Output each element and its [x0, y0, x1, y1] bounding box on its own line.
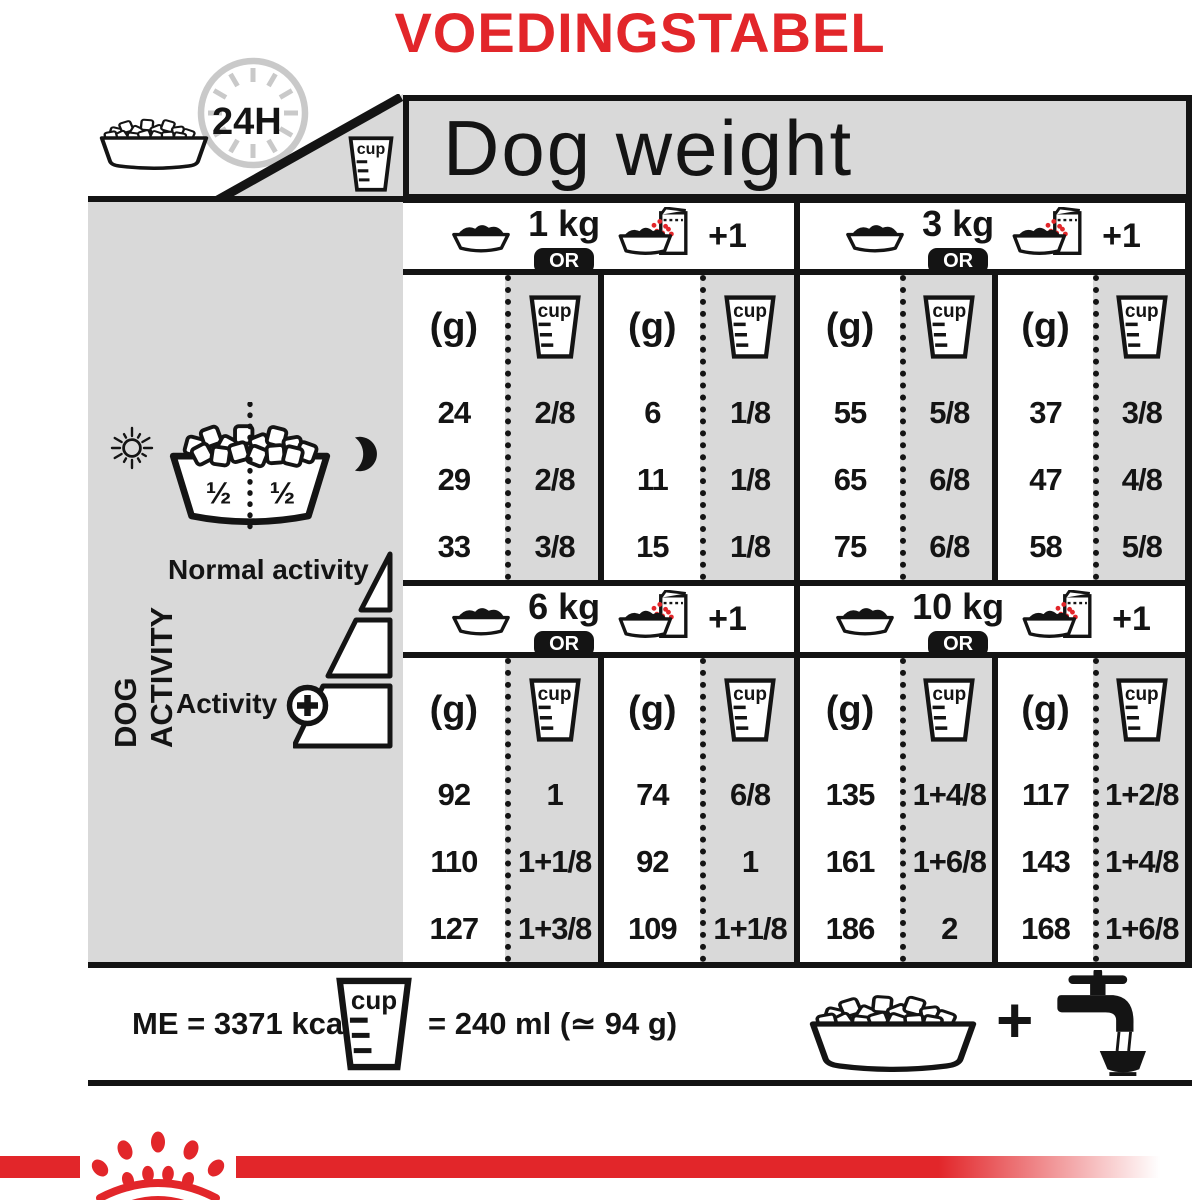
bowl-with-wet-pouch-icon [616, 207, 692, 261]
grams-column: (g) 135 161 186 [800, 658, 900, 962]
weight-block-header: 3 kg OR +1 [800, 203, 1185, 275]
cup-header: cup [706, 275, 794, 379]
weight-or-stack: 10 kg OR [912, 589, 1004, 650]
cup-equivalent-label: = 240 ml (≃ 94 g) [428, 968, 677, 1080]
grams-value: 15 [604, 513, 700, 580]
weight-grid: 1 kg OR +1 (g) 24 29 33 cup [403, 203, 1192, 962]
grams-value: 92 [604, 829, 700, 896]
grams-value: 24 [403, 379, 505, 446]
cup-value: 1+1/8 [511, 829, 599, 896]
grams-column: (g) 117 143 168 [992, 658, 1092, 962]
cup-value: 1+4/8 [906, 762, 992, 829]
dog-weight-value: 3 kg [922, 206, 994, 242]
cup-header: cup [511, 275, 599, 379]
cup-icon: cup [336, 977, 412, 1071]
weight-block-header: 10 kg OR +1 [800, 586, 1185, 658]
grams-header: (g) [604, 275, 700, 379]
grams-header: (g) [800, 275, 900, 379]
grams-value: 75 [800, 513, 900, 580]
cup-label: cup [346, 141, 396, 159]
grams-column: (g) 55 65 75 [800, 275, 900, 580]
half-half-bowl-icon: ½ ½ [165, 402, 335, 542]
weight-block: 3 kg OR +1 (g) 55 65 75 cup [794, 203, 1185, 580]
grams-value: 29 [403, 446, 505, 513]
cup-value: 1 [706, 829, 794, 896]
cup-value: 1+2/8 [1099, 762, 1185, 829]
cup-header: cup [1099, 275, 1185, 379]
cup-icon: cup [529, 678, 581, 742]
water-tap-icon [1040, 970, 1146, 1078]
cup-value: 1+4/8 [1099, 829, 1185, 896]
cup-icon: cup [1116, 295, 1168, 359]
table-bottom-border [88, 1080, 1192, 1086]
cup-value: 2/8 [511, 379, 599, 446]
cup-value: 6/8 [706, 762, 794, 829]
grams-value: 127 [403, 895, 505, 962]
kibble-bowl-icon [804, 982, 982, 1072]
red-band-right [236, 1156, 1160, 1178]
grams-column: (g) 74 92 109 [598, 658, 700, 962]
cup-icon: cup [724, 295, 776, 359]
measure-columns: (g) 135 161 186 cup 1+4/8 1+6/8 2 [800, 658, 1185, 962]
grams-header: (g) [800, 658, 900, 762]
grams-header: (g) [403, 658, 505, 762]
cup-column: cup 1/8 1/8 1/8 [700, 275, 794, 580]
cup-column: cup 1+2/8 1+4/8 1+6/8 [1093, 658, 1185, 962]
weight-block: 6 kg OR +1 (g) 92 110 127 cup [403, 580, 794, 962]
cup-label: cup [1116, 684, 1168, 706]
or-badge: OR [534, 248, 594, 274]
bowl-with-wet-pouch-icon [1020, 590, 1096, 644]
cup-header: cup [1099, 658, 1185, 762]
kibble-bowl-icon [96, 110, 212, 170]
cup-value: 3/8 [511, 513, 599, 580]
royal-canin-crown-logo [84, 1124, 232, 1200]
weight-or-stack: 6 kg OR [528, 589, 600, 650]
footer-bar: ME = 3371 kcal/kg cup = 240 ml (≃ 94 g) … [88, 968, 1192, 1080]
dog-activity-sidebar: ½ ½ DOG ACTIVITY Normal activity Activit… [88, 202, 403, 962]
bowl-with-wet-pouch-icon [1010, 207, 1086, 261]
weight-block-header: 1 kg OR +1 [403, 203, 794, 275]
dry-food-bowl-icon [450, 603, 512, 636]
cup-label: cup [529, 684, 581, 706]
cup-value: 5/8 [1099, 513, 1185, 580]
cup-column: cup 5/8 6/8 6/8 [900, 275, 992, 580]
weight-block-header: 6 kg OR +1 [403, 586, 794, 658]
cup-value: 1+6/8 [906, 829, 992, 896]
cup-value: 1+3/8 [511, 895, 599, 962]
grams-value: 11 [604, 446, 700, 513]
or-badge: OR [534, 631, 594, 657]
cup-value: 1+1/8 [706, 895, 794, 962]
dry-food-bowl-icon [844, 220, 906, 253]
or-badge: OR [928, 631, 988, 657]
plus-one-label: +1 [708, 600, 747, 639]
cup-value: 2/8 [511, 446, 599, 513]
grams-value: 117 [998, 762, 1092, 829]
cup-value: 6/8 [906, 513, 992, 580]
cup-icon: cup [724, 678, 776, 742]
cup-column: cup 2/8 2/8 3/8 [505, 275, 599, 580]
cup-icon: cup [923, 295, 975, 359]
cup-column: cup 6/8 1 1+1/8 [700, 658, 794, 962]
grams-header: (g) [604, 658, 700, 762]
grams-value: 143 [998, 829, 1092, 896]
measure-columns: (g) 24 29 33 cup 2/8 2/8 3/8 [403, 275, 794, 580]
cup-label: cup [529, 301, 581, 323]
grams-value: 109 [604, 895, 700, 962]
cup-column: cup 1+4/8 1+6/8 2 [900, 658, 992, 962]
grams-column: (g) 6 11 15 [598, 275, 700, 580]
grams-column: (g) 92 110 127 [403, 658, 505, 962]
dog-weight-header: Dog weight [403, 95, 1192, 200]
cup-label: cup [724, 684, 776, 706]
weight-block: 1 kg OR +1 (g) 24 29 33 cup [403, 203, 794, 580]
cup-label: cup [336, 985, 412, 1016]
measure-columns: (g) 92 110 127 cup 1 1+1/8 1+3/8 [403, 658, 794, 962]
cup-header: cup [906, 275, 992, 379]
cup-value: 1/8 [706, 513, 794, 580]
grams-value: 135 [800, 762, 900, 829]
grams-column: (g) 37 47 58 [992, 275, 1092, 580]
plus-one-label: +1 [1102, 217, 1141, 256]
cup-value: 5/8 [906, 379, 992, 446]
grams-value: 47 [998, 446, 1092, 513]
grams-header: (g) [998, 658, 1092, 762]
plus-one-label: +1 [708, 217, 747, 256]
grams-value: 168 [998, 895, 1092, 962]
grams-value: 186 [800, 895, 900, 962]
dog-weight-value: 1 kg [528, 206, 600, 242]
cup-icon: cup [923, 678, 975, 742]
grams-column: (g) 24 29 33 [403, 275, 505, 580]
dry-food-bowl-icon [834, 603, 896, 636]
grams-value: 65 [800, 446, 900, 513]
cup-icon: cup [346, 136, 396, 192]
moon-icon [346, 430, 379, 478]
grams-value: 161 [800, 829, 900, 896]
grams-header: (g) [998, 275, 1092, 379]
plus-sign: + [996, 968, 1033, 1072]
grams-value: 55 [800, 379, 900, 446]
cup-column: cup 3/8 4/8 5/8 [1093, 275, 1185, 580]
measure-columns: (g) 55 65 75 cup 5/8 6/8 6/8 [800, 275, 1185, 580]
weight-or-stack: 3 kg OR [922, 206, 994, 267]
cup-value: 1+6/8 [1099, 895, 1185, 962]
cup-column: cup 1 1+1/8 1+3/8 [505, 658, 599, 962]
weight-or-stack: 1 kg OR [528, 206, 600, 267]
grams-value: 110 [403, 829, 505, 896]
or-badge: OR [928, 248, 988, 274]
cup-value: 3/8 [1099, 379, 1185, 446]
dog-weight-title: Dog weight [409, 109, 853, 187]
grams-value: 74 [604, 762, 700, 829]
cup-header: cup [511, 658, 599, 762]
grams-value: 33 [403, 513, 505, 580]
red-band-left [0, 1156, 80, 1178]
grams-header: (g) [403, 275, 505, 379]
cup-value: 1 [511, 762, 599, 829]
grams-value: 58 [998, 513, 1092, 580]
cup-label: cup [923, 301, 975, 323]
dog-weight-value: 10 kg [912, 589, 1004, 625]
grams-value: 37 [998, 379, 1092, 446]
cup-value: 1/8 [706, 446, 794, 513]
cup-label: cup [1116, 301, 1168, 323]
cup-value: 1/8 [706, 379, 794, 446]
cup-label: cup [724, 301, 776, 323]
half-right-label: ½ [269, 475, 295, 510]
cup-header: cup [906, 658, 992, 762]
activity-label: Activity [176, 688, 277, 720]
plus-one-label: +1 [1112, 600, 1151, 639]
cup-icon: cup [529, 295, 581, 359]
feeding-guide-panel: VOEDINGSTABEL 24H cup Dog weight [0, 0, 1198, 1200]
plus-circle-icon [284, 682, 331, 729]
cup-value: 4/8 [1099, 446, 1185, 513]
grams-value: 6 [604, 379, 700, 446]
grams-value: 92 [403, 762, 505, 829]
bowl-with-wet-pouch-icon [616, 590, 692, 644]
sun-icon [108, 424, 156, 472]
dry-food-bowl-icon [450, 220, 512, 253]
cup-value: 2 [906, 895, 992, 962]
cup-label: cup [923, 684, 975, 706]
cup-icon: cup [1116, 678, 1168, 742]
weight-block: 10 kg OR +1 (g) 135 161 186 cu [794, 580, 1185, 962]
half-left-label: ½ [206, 475, 232, 510]
dog-weight-value: 6 kg [528, 589, 600, 625]
cup-header: cup [706, 658, 794, 762]
cup-value: 6/8 [906, 446, 992, 513]
